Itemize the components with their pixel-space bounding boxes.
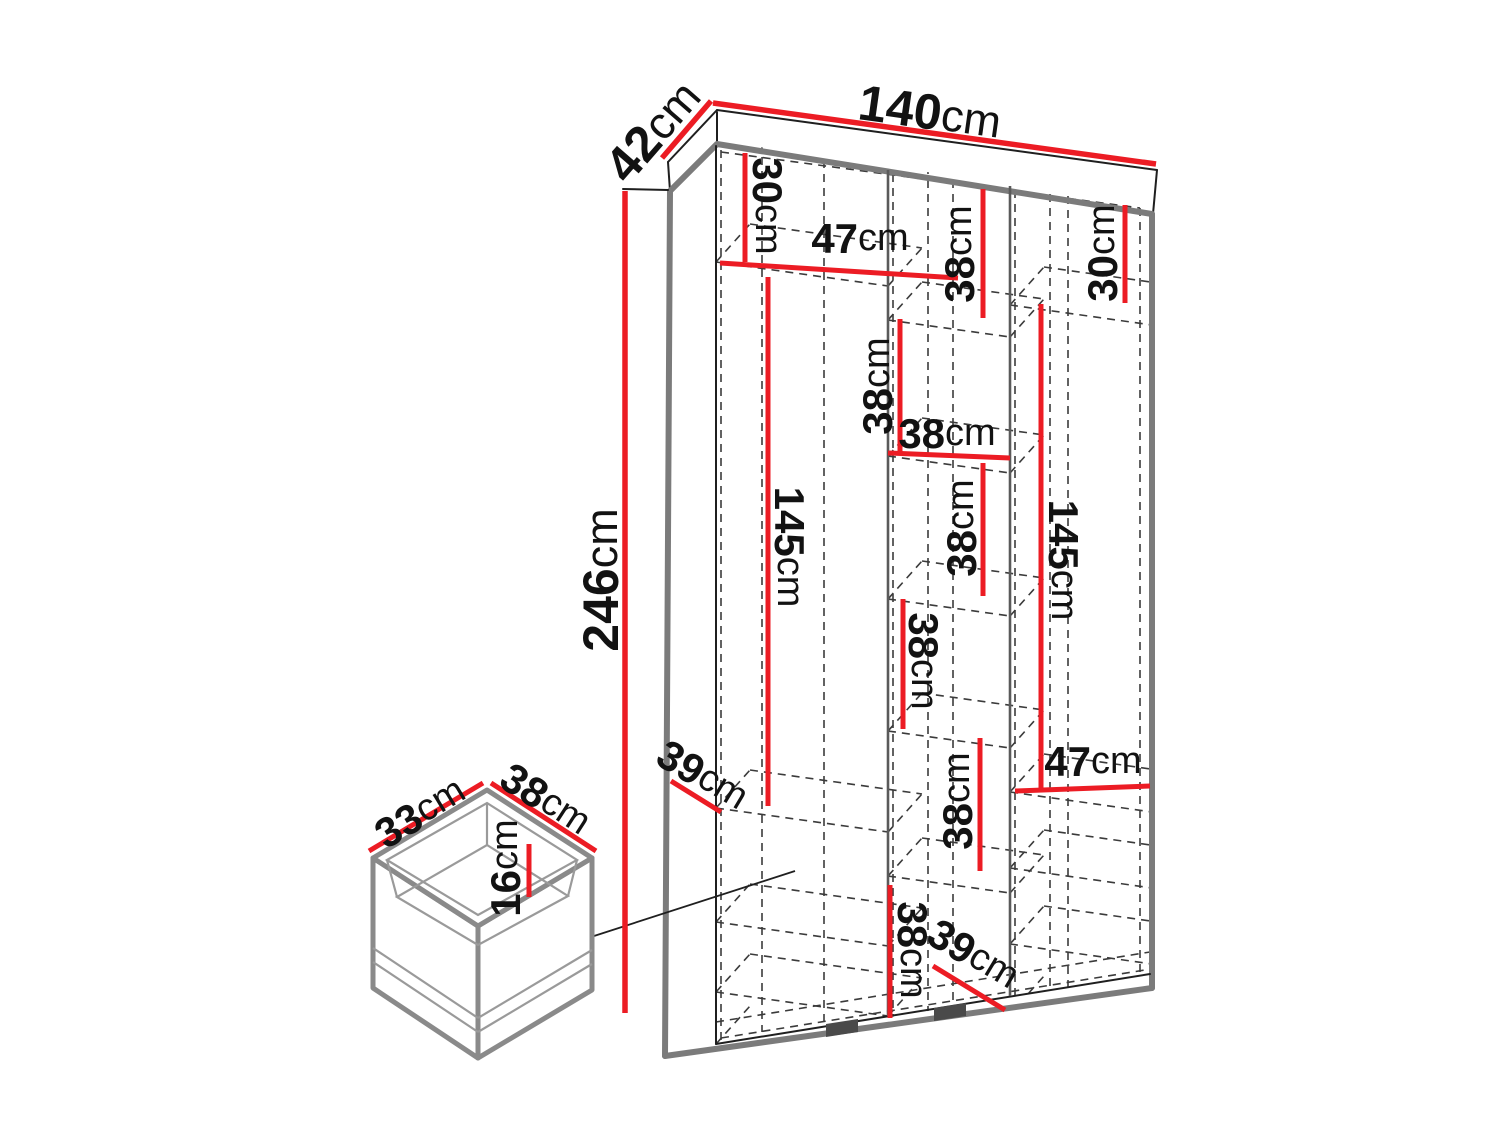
dim-mid-top-height-label: 38cm <box>936 205 983 302</box>
dim-mid-section2-label: 38cm <box>854 337 901 434</box>
dim-height-label: 246cm <box>573 508 629 651</box>
dim-right-shelf-label: 47cm <box>1044 738 1141 785</box>
dim-left-top-shelf-line <box>720 263 958 278</box>
dim-drawer-height-label: 16cm <box>482 819 529 916</box>
dim-right-top-height-label: 30cm <box>1079 204 1126 301</box>
dim-bottom-shelf-depth-label: 39cm <box>920 909 1028 999</box>
extension-line <box>623 189 668 190</box>
dim-mid-section4-label: 38cm <box>901 612 948 709</box>
dim-right-shelf-line <box>1015 786 1150 791</box>
dim-left-top-height-label: 30cm <box>745 157 792 254</box>
dim-right-hanging-label: 145cm <box>1041 500 1088 621</box>
dim-mid-section3-label: 38cm <box>938 479 985 576</box>
diagram-page: 42cm 140cm 246cm 30cm 47cm 38cm 30cm 145… <box>0 0 1500 1125</box>
dim-width-label: 140cm <box>855 74 1005 149</box>
wardrobe-dimension-diagram: 42cm 140cm 246cm 30cm 47cm 38cm 30cm 145… <box>0 0 1500 1125</box>
left-outer-edge <box>665 191 670 1056</box>
dim-mid-section5-label: 38cm <box>934 752 981 849</box>
dim-depth-label: 42cm <box>594 69 712 193</box>
feet <box>826 1003 966 1037</box>
dim-left-hanging-label: 145cm <box>767 487 814 608</box>
dim-mid-width-label: 38cm <box>898 410 995 457</box>
dim-left-top-shelf-label: 47cm <box>811 215 908 262</box>
